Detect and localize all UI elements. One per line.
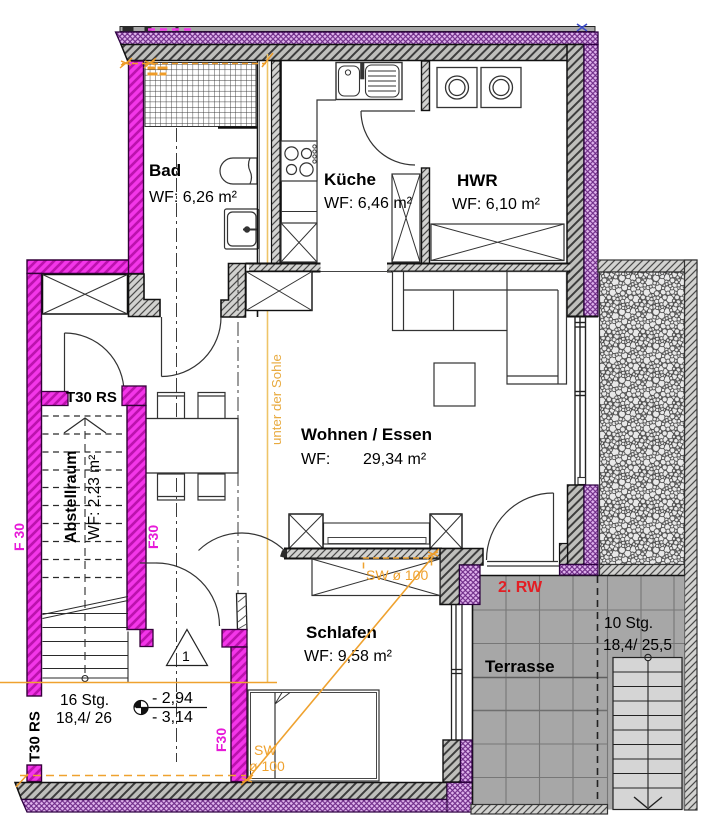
svg-text:Abstellraum: Abstellraum xyxy=(63,451,80,543)
svg-text:WF: 2,23 m²: WF: 2,23 m² xyxy=(86,455,103,540)
svg-text:SW ø 100: SW ø 100 xyxy=(366,567,428,583)
svg-text:10 Stg.: 10 Stg. xyxy=(604,615,653,632)
svg-text:F30: F30 xyxy=(145,525,161,549)
svg-text:Wohnen / Essen: Wohnen / Essen xyxy=(301,425,432,444)
svg-text:- 2,94: - 2,94 xyxy=(152,690,193,707)
svg-text:Schlafen: Schlafen xyxy=(306,623,377,642)
svg-text:Küche: Küche xyxy=(324,170,376,189)
svg-text:F30: F30 xyxy=(213,728,229,752)
svg-text:WF: 6,26 m²: WF: 6,26 m² xyxy=(149,189,238,206)
svg-text:T30 RS: T30 RS xyxy=(66,389,117,406)
svg-text:WF: 6,10 m²: WF: 6,10 m² xyxy=(452,196,541,213)
svg-text:SW: SW xyxy=(254,742,277,758)
svg-text:2. RW: 2. RW xyxy=(498,579,543,596)
svg-text:ø 100: ø 100 xyxy=(249,758,285,774)
svg-text:HWR: HWR xyxy=(457,171,498,190)
svg-text:unter der Sohle: unter der Sohle xyxy=(269,354,284,445)
svg-text:F 30: F 30 xyxy=(11,523,27,551)
svg-text:WF: 9,58 m²: WF: 9,58 m² xyxy=(304,648,393,665)
svg-text:T30 RS: T30 RS xyxy=(27,711,44,762)
svg-text:- 3,14: - 3,14 xyxy=(152,709,193,726)
svg-text:1: 1 xyxy=(182,648,190,664)
svg-text:WF: 6,46 m²: WF: 6,46 m² xyxy=(324,195,413,212)
svg-text:WF:: WF: xyxy=(301,451,330,468)
svg-text:18,4/ 25,5: 18,4/ 25,5 xyxy=(603,637,672,654)
svg-text:18,4/ 26: 18,4/ 26 xyxy=(56,710,112,727)
svg-text:29,34 m²: 29,34 m² xyxy=(363,451,427,468)
svg-text:16 Stg.: 16 Stg. xyxy=(60,692,109,709)
svg-text:Terrasse: Terrasse xyxy=(485,657,555,676)
